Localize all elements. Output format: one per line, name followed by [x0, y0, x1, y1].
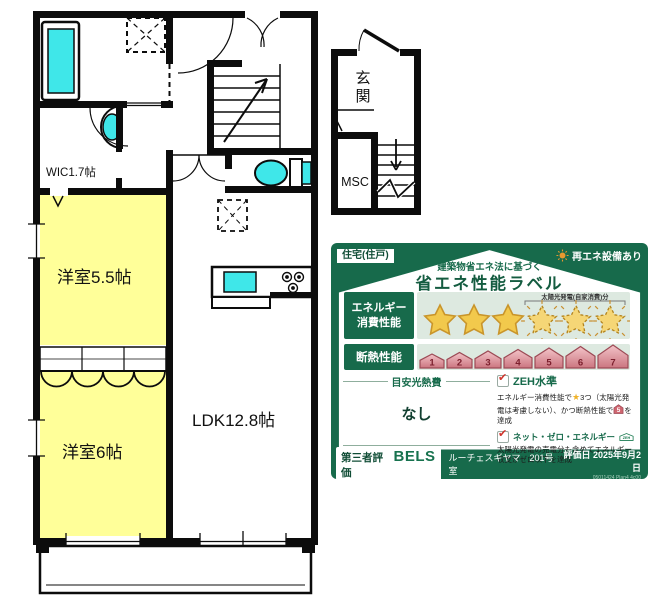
- certifier-text: 第三者評価: [341, 450, 390, 480]
- room-label-entrance: 玄: [355, 70, 370, 87]
- bels-brand: BELS: [394, 448, 436, 465]
- refrigerator-space-icon: [218, 200, 247, 231]
- star-solar-icon: [521, 300, 563, 339]
- insulation-level-house: 2: [447, 353, 472, 369]
- sliding-door-icon: [127, 100, 161, 109]
- toilet-icon: [255, 159, 311, 187]
- insulation-grade5-icon: 5: [613, 404, 624, 414]
- entrance-block: 玄 関 MSC: [332, 30, 418, 212]
- utility-cost-heading: 目安光熱費: [392, 374, 442, 389]
- bathtub-icon: [42, 22, 79, 100]
- room-label-bedroom-6: 洋室6帖: [62, 443, 122, 462]
- energy-consumption-label: エネルギー 消費性能: [344, 292, 414, 339]
- net-zero-item: ✔ ネット・ゼロ・エネルギー ZEH: [497, 431, 634, 443]
- svg-text:7: 7: [610, 358, 615, 369]
- divider: [343, 445, 490, 446]
- room-label-ldk: LDK12.8帖: [192, 411, 275, 430]
- check-icon: ✔: [497, 375, 509, 387]
- washing-machine-space-icon: [127, 18, 165, 52]
- star-icon: ★: [572, 392, 580, 402]
- room-label-msc: MSC: [341, 175, 369, 189]
- room-label-bedroom-55: 洋室5.5帖: [57, 268, 132, 287]
- solar-note: 太陽光発電(自家消費)分: [541, 292, 609, 301]
- kitchen-sink-icon: [224, 272, 256, 292]
- star-filled-icon: [425, 305, 455, 334]
- closet-sliding-doors: [40, 347, 166, 371]
- insulation-scale: 1 2 3 4 5 6 7: [417, 344, 630, 370]
- label-title: 省エネ性能ラベル: [331, 270, 648, 294]
- estimated-utility-cost: 目安光熱費 なし: [343, 374, 490, 446]
- svg-text:ZEH: ZEH: [623, 435, 631, 439]
- screenshot-root: 玄 関 MSC WIC1.7帖 洋室5.5帖 洋室6帖 LDK12.8帖 住宅(…: [0, 0, 651, 609]
- divider: [343, 381, 388, 382]
- door-arc: [173, 155, 199, 181]
- svg-text:5: 5: [617, 407, 621, 414]
- bels-box: 第三者評価 BELS: [336, 447, 441, 480]
- insulation-level-house: 3: [475, 351, 501, 369]
- net-zero-title: ネット・ゼロ・エネルギー: [513, 431, 615, 443]
- label-code: 05011424 Plan4 4c00: [558, 475, 641, 480]
- insulation-level-house: 5: [535, 348, 563, 369]
- insulation-level-house: 1: [420, 354, 444, 369]
- star-solar-icon: [555, 300, 597, 339]
- door-arc: [199, 155, 225, 181]
- energy-performance-label: 住宅(住戸) 再エネ設備あり 建築物省エネ法に基づく 省エネ性能ラベル エネルギ…: [331, 243, 648, 479]
- room-label-wic: WIC1.7帖: [46, 165, 96, 179]
- insulation-label-text: 断熱性能: [356, 349, 402, 365]
- kitchen-counter: [212, 267, 312, 308]
- zeh-standard-desc: エネルギー消費性能で★3つ（太陽光発電は考慮しない）、かつ断熱性能で5を達成: [497, 391, 634, 427]
- balcony: [36, 545, 315, 593]
- double-door-icon: [245, 10, 280, 47]
- energy-consumption-stars: 太陽光発電(自家消費)分: [417, 292, 630, 339]
- evaluation-date: 評価日 2025年9月2日: [558, 448, 641, 474]
- svg-text:4: 4: [515, 358, 521, 369]
- svg-text:6: 6: [578, 358, 583, 369]
- label-footer: 第三者評価 BELS ルーチェスギヤマ 201号室 評価日 2025年9月2日 …: [331, 449, 648, 479]
- svg-text:5: 5: [546, 358, 552, 369]
- zeh-standard-title: ZEH水準: [513, 373, 557, 389]
- svg-text:3: 3: [485, 358, 490, 369]
- insulation-label: 断熱性能: [344, 344, 414, 370]
- insulation-level-house: 4: [504, 350, 532, 369]
- check-icon: ✔: [497, 431, 509, 443]
- room-label-entrance: 関: [355, 88, 370, 105]
- star-solar-icon: [589, 300, 630, 339]
- utility-cost-value: なし: [343, 403, 490, 424]
- svg-text:2: 2: [457, 358, 462, 369]
- insulation-level-house: 6: [566, 347, 595, 369]
- insulation-level-house: 7: [598, 345, 628, 369]
- divider: [446, 381, 491, 382]
- energy-label-line1: エネルギー: [352, 301, 407, 315]
- energy-label-line2: 消費性能: [357, 316, 401, 330]
- svg-text:1: 1: [429, 358, 435, 369]
- stairs-icon: [214, 64, 280, 148]
- star-filled-icon: [493, 305, 523, 334]
- zeh-badge-icon: ZEH: [619, 431, 634, 443]
- evaluation-date-block: 評価日 2025年9月2日 05011424 Plan4 4c00: [558, 448, 641, 480]
- building-name: ルーチェスギヤマ 201号室: [449, 451, 558, 477]
- star-filled-icon: [459, 305, 489, 334]
- zeh-standard-item: ✔ ZEH水準: [497, 373, 634, 389]
